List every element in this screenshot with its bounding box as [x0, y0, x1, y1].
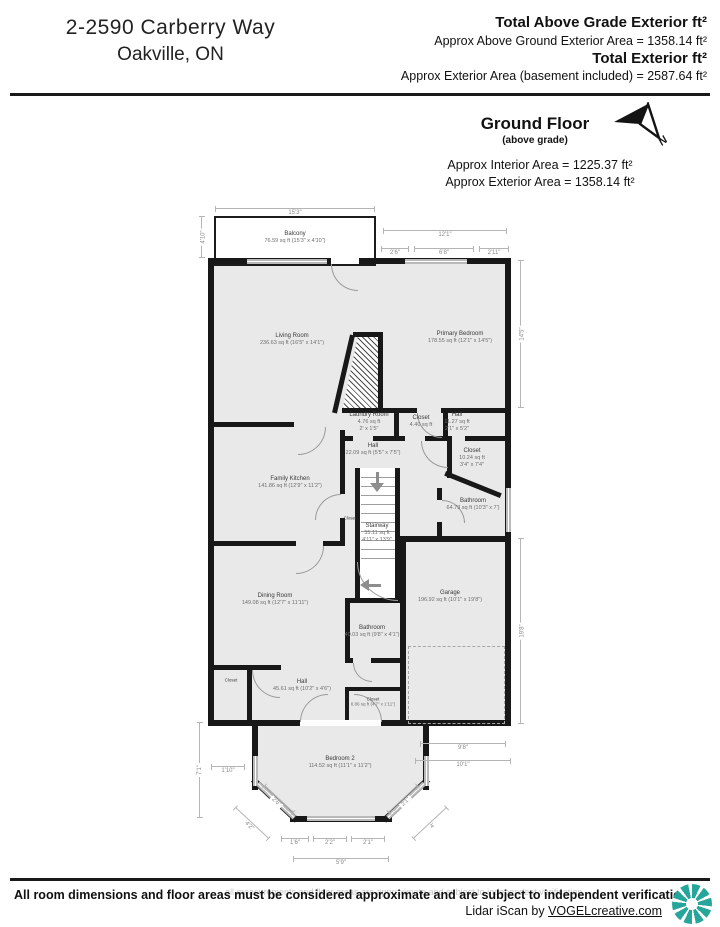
window [247, 259, 327, 264]
wall [371, 658, 400, 663]
wall [400, 536, 511, 542]
window [307, 816, 375, 821]
dimension: 5'9" [293, 858, 389, 877]
room-label-garage: Garage196.92 sq ft (10'1" x 19'8") [418, 590, 482, 604]
stair-left-arrow [360, 579, 369, 591]
room-label-balcony: Balcony76.59 sq ft (15'3" x 4'10") [264, 231, 325, 245]
dimension: 7'1" [199, 722, 200, 818]
total-above-grade-detail: Approx Above Ground Exterior Area = 1358… [401, 33, 707, 49]
room-label-hall: Hall22.09 sq ft (5'5" x 7'5") [346, 443, 401, 457]
dimension: 4'2" [223, 807, 270, 852]
dimension: 1'10" [211, 766, 245, 785]
vogelcreative-link[interactable]: VOGELcreative.com [548, 904, 662, 918]
wall [214, 422, 294, 427]
floor-areas: Approx Interior Area = 1225.37 ft² Appro… [405, 157, 675, 191]
total-above-grade-label: Total Above Grade Exterior ft² [401, 13, 707, 33]
address-line1: 2-2590 Carberry Way [38, 16, 303, 40]
room-label-hall: Hall11.27 sq ft2'1" x 5'2" [444, 412, 469, 432]
room-label-family-kitchen: Family Kitchen141.86 sq ft (12'9" x 11'2… [258, 476, 322, 490]
room-label-primary-bedroom: Primary Bedroom178.55 sq ft (12'1" x 14'… [428, 331, 492, 345]
dimension: 6'8" [414, 248, 474, 267]
credit-prefix: Lidar iScan by [465, 904, 548, 918]
dimension: 12'1" [383, 230, 507, 249]
dimension: 2'1" [351, 838, 385, 857]
total-exterior-label: Total Exterior ft² [401, 49, 707, 69]
north-compass-icon: N [612, 102, 674, 152]
floor-plan: Balcony76.59 sq ft (15'3" x 4'10") Livin… [195, 200, 540, 872]
room-label-bathroom: Bathroom40.03 sq ft (9'8" x 4'1") [345, 625, 400, 639]
wall [252, 720, 300, 726]
header-divider [10, 93, 710, 96]
room-label-hall: Hall45.61 sq ft (10'2" x 4'6") [273, 679, 331, 693]
credit-line: Lidar iScan by VOGELcreative.com [465, 904, 662, 918]
room-label-dining-room: Dining Room149.08 sq ft (12'7" x 11'11") [242, 593, 308, 607]
address-line2: Oakville, ON [38, 44, 303, 66]
dimension: 4' [413, 807, 460, 852]
wall [345, 658, 353, 663]
property-address: 2-2590 Carberry Way Oakville, ON [38, 16, 303, 66]
stair-tread [361, 504, 395, 505]
room-label-closet: Closet10.24 sq ft3'4" x 7'4" [459, 448, 485, 468]
window [253, 756, 258, 786]
footer-divider [10, 878, 710, 881]
stair-tread [361, 513, 395, 514]
stair-down-arrow [370, 483, 384, 492]
dimension: 14'5" [520, 260, 521, 408]
disclaimer-text: All room dimensions and floor areas must… [14, 888, 692, 902]
dimension: 19'8" [520, 538, 521, 724]
stair-tread [361, 549, 395, 550]
dimension: 2'11" [479, 248, 509, 267]
stair-tread [361, 558, 395, 559]
pinwheel-logo-icon [672, 884, 712, 924]
dimension: 2'2" [313, 838, 347, 857]
area-totals: Total Above Grade Exterior ft² Approx Ab… [401, 13, 707, 85]
room-label-stairway: Stairway55.11 sq ft4'11" x 13'9" [362, 523, 392, 543]
wall [378, 332, 383, 412]
wall [208, 258, 214, 726]
room-label-bedroom-2: Bedroom 2114.52 sq ft (11'1" x 11'2") [309, 756, 372, 770]
dimension: 10'1" [415, 760, 511, 779]
room-label-closet: Closet [344, 515, 357, 520]
room-label-living-room: Living Room236.63 sq ft (16'5" x 14'1") [260, 333, 324, 347]
dimension: 4'10" [201, 216, 202, 258]
garage-dashed-zone [408, 646, 505, 724]
wall [373, 436, 405, 441]
wall [345, 687, 349, 720]
wall [437, 488, 442, 500]
window [506, 488, 511, 532]
wall [400, 536, 406, 726]
wall [340, 430, 345, 494]
room-label-closet: Closet4.40 sq ft [410, 415, 433, 429]
wall [340, 518, 345, 546]
stair-tread [361, 495, 395, 496]
wall [465, 436, 511, 441]
wall [345, 687, 401, 691]
dimension: 2'6" [381, 248, 409, 267]
exterior-area: Approx Exterior Area = 1358.14 ft² [405, 174, 675, 191]
wall [214, 541, 296, 546]
room-label-bathroom: Bathroom64.73 sq ft (10'3" x 7') [447, 498, 500, 512]
room-label-closet: Closet8.86 sq ft (4'7" x 1'11") [351, 697, 396, 708]
dimension: 1'6" [281, 838, 309, 857]
interior-area: Approx Interior Area = 1225.37 ft² [405, 157, 675, 174]
room-label-closet: Closet [225, 677, 238, 682]
stair-left-arrow [369, 584, 381, 587]
room-label-laundry: Laundry Room4.76 sq ft2' x 1'5" [349, 412, 388, 432]
dimension: 15'3" [215, 208, 375, 227]
total-exterior-detail: Approx Exterior Area (basement included)… [401, 68, 707, 84]
